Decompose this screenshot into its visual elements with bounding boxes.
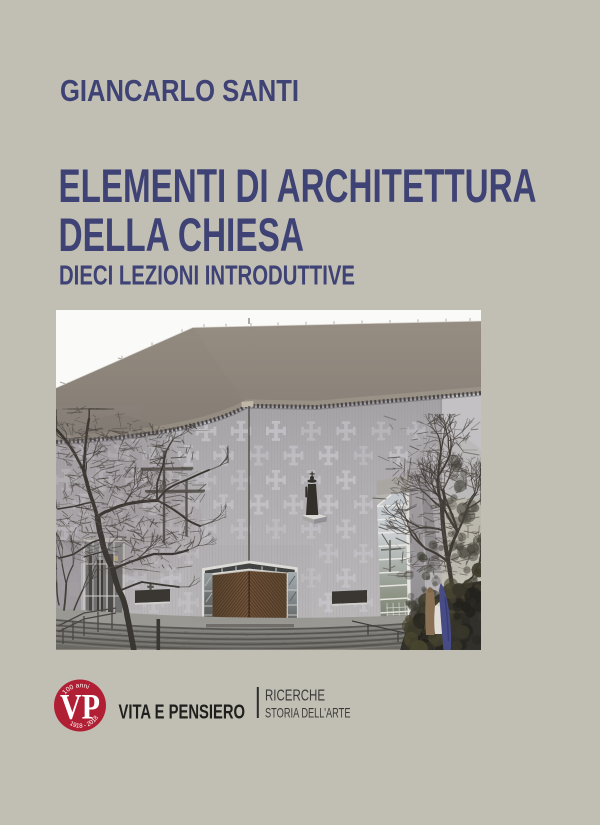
svg-text:GIANCARLO SANTI: GIANCARLO SANTI <box>60 73 299 108</box>
svg-text:DIECI LEZIONI INTRODUTTIVE: DIECI LEZIONI INTRODUTTIVE <box>59 260 355 291</box>
svg-text:STORIA DELL’ARTE: STORIA DELL’ARTE <box>265 706 351 721</box>
svg-text:DELLA CHIESA: DELLA CHIESA <box>59 209 305 262</box>
svg-text:VITA E PENSIERO: VITA E PENSIERO <box>119 702 246 724</box>
svg-text:RICERCHE: RICERCHE <box>265 687 325 704</box>
svg-text:ELEMENTI DI ARCHITETTURA: ELEMENTI DI ARCHITETTURA <box>59 160 537 213</box>
